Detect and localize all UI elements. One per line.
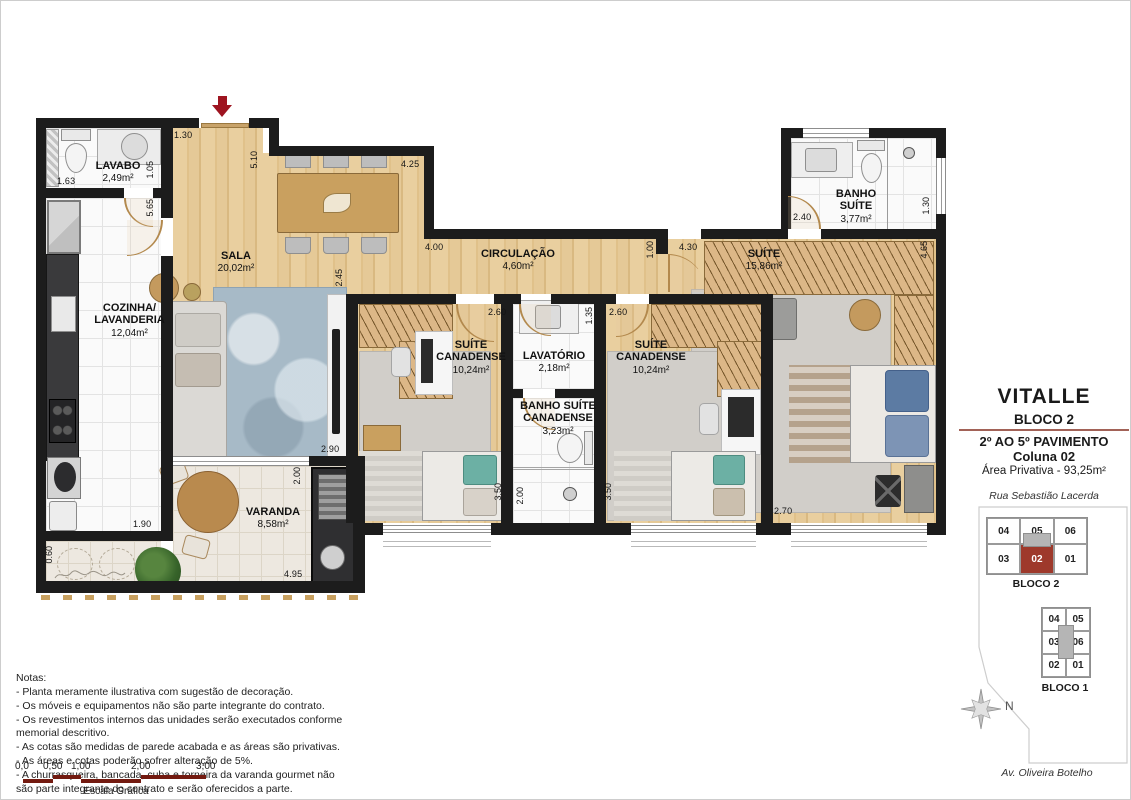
keyplan-unit-01[interactable]: 01 — [1054, 544, 1087, 574]
wall — [161, 256, 173, 461]
dining-chair — [361, 237, 387, 254]
dimension: 3.50 — [493, 483, 503, 501]
dimension: 4.30 — [679, 242, 697, 252]
pillow-neutral-2 — [713, 488, 745, 516]
decor-bowl — [183, 283, 201, 301]
dimension: 2.60 — [609, 307, 627, 317]
scale-tick-label: 3,00 — [196, 761, 215, 772]
wall — [513, 294, 521, 304]
wall — [269, 146, 434, 156]
wall — [756, 523, 791, 535]
pillow-teal-2 — [713, 455, 745, 485]
compass-rose-icon — [959, 687, 1003, 731]
keyplan-b1-core — [1058, 625, 1074, 659]
divider-line — [959, 429, 1129, 431]
wall — [153, 188, 173, 198]
lavabo-toilet-tank — [61, 129, 91, 141]
room-label-banho-canadense: BANHO SUÍTE CANADENSE3,23m² — [506, 400, 610, 437]
keyplan-unit-03[interactable]: 03 — [987, 544, 1020, 574]
keyplan-unit-04[interactable]: 04 — [987, 518, 1020, 544]
room-label-cozinha: COZINHA/ LAVANDERIA12,04m² — [77, 302, 182, 339]
nightstand — [363, 425, 401, 451]
keyplan-unit-06[interactable]: 06 — [1054, 518, 1087, 544]
wall — [513, 389, 523, 398]
wall — [761, 294, 773, 523]
wall — [36, 581, 365, 593]
scale-tick-label: 0,0 — [15, 761, 29, 772]
note-line: memorial descritivo. — [16, 727, 356, 741]
room-label-banho-suite: BANHO SUÍTE3,77m² — [811, 188, 901, 225]
kitchen-sink — [51, 296, 76, 332]
dining-table-centerpiece — [323, 193, 351, 213]
cooktop — [49, 399, 76, 443]
keyplan-bloco-1-label: BLOCO 1 — [1017, 682, 1113, 694]
wall — [781, 128, 803, 138]
bed-pillow-blue — [885, 370, 929, 412]
scale-bar-segment — [53, 775, 81, 779]
pillow-teal — [463, 455, 497, 485]
compass-north-label: N — [1005, 699, 1014, 713]
wall — [36, 531, 173, 541]
dimension: 4.95 — [284, 569, 302, 579]
sliding-door-varanda — [173, 456, 309, 466]
wall — [36, 188, 124, 198]
block-title: BLOCO 2 — [959, 412, 1129, 427]
dimension: 2.60 — [488, 307, 506, 317]
window — [803, 128, 869, 138]
wall — [821, 229, 946, 239]
wall — [927, 523, 946, 535]
single-bed-2-blanket — [614, 451, 672, 521]
room-label-suite-canadense-2: SUÍTE CANADENSE10,24m² — [596, 339, 706, 376]
banho-suite-toilet-tank — [857, 140, 885, 151]
window-sill — [383, 541, 491, 547]
round-side-table — [849, 299, 881, 331]
room-label-sala: SALA20,02m² — [191, 250, 281, 275]
fridge — [47, 200, 81, 254]
window — [791, 525, 927, 533]
washing-machine-drum — [54, 462, 76, 492]
desk-2-computer — [728, 397, 754, 437]
x-chair — [875, 475, 901, 507]
wall — [353, 523, 383, 535]
wall — [656, 229, 668, 254]
scale-tick-label: 2,00 — [131, 761, 150, 772]
dimension: 3.50 — [603, 483, 613, 501]
street-name-bottom: Av. Oliveira Botelho — [967, 767, 1127, 779]
keyplan-unit-02-highlighted[interactable]: 02 — [1020, 544, 1053, 574]
dining-chair — [285, 237, 311, 254]
keyplan-bloco-2-label: BLOCO 2 — [986, 578, 1086, 590]
wall — [701, 229, 788, 239]
sofa-cushion — [175, 353, 221, 387]
dimension: 4.25 — [401, 159, 419, 169]
scale-tick-label: 0,50 — [43, 761, 62, 772]
note-line: - Os revestimentos internos das unidades… — [16, 714, 356, 728]
dimension: 5.10 — [249, 151, 259, 169]
dimension: 5.65 — [145, 199, 155, 217]
shower-partition-line — [513, 467, 594, 470]
wall — [424, 146, 434, 239]
wall — [869, 128, 946, 138]
dimension: 4.00 — [425, 242, 443, 252]
window-sill — [631, 541, 756, 547]
dimension: 1.35 — [584, 307, 594, 325]
scale-bar-segment — [23, 779, 53, 783]
dimension: 1.05 — [145, 161, 155, 179]
dimension: 0.60 — [44, 546, 54, 564]
bed-pillow-blue — [885, 415, 929, 457]
note-line: - Planta meramente ilustrativa com suges… — [16, 686, 356, 700]
wall — [491, 523, 631, 535]
wall — [649, 294, 771, 304]
column-label: Coluna 02 — [959, 449, 1129, 464]
banho-suite-basin — [805, 148, 837, 172]
wall — [424, 229, 656, 239]
window — [936, 158, 946, 214]
dimension: 1.90 — [133, 519, 151, 529]
room-label-suite: SUÍTE15,86m² — [714, 248, 814, 273]
dimension: 2.90 — [321, 444, 339, 454]
single-bed-blanket — [359, 451, 423, 521]
dimension: 1.30 — [921, 197, 931, 215]
dimension: 2.00 — [515, 487, 525, 505]
window — [383, 525, 491, 533]
scale-tick-label: 1,00 — [71, 761, 90, 772]
window — [631, 525, 756, 533]
shower-head-2 — [563, 487, 577, 501]
wall — [936, 128, 946, 158]
wall — [36, 118, 199, 128]
keyplan-core — [1023, 533, 1051, 547]
dimension: 4.65 — [919, 241, 929, 259]
entry-door-leaf — [201, 123, 249, 128]
gourmet-sink — [320, 545, 345, 570]
room-label-lavatorio: LAVATÓRIO2,18m² — [510, 350, 598, 375]
dimension: 2.70 — [774, 506, 792, 516]
tv-screen — [332, 329, 340, 434]
floorplan-sheet: LAVABO2,49m² SALA20,02m² COZINHA/ LAVAND… — [0, 0, 1131, 800]
dimension: 2.00 — [292, 467, 302, 485]
dining-chair — [323, 237, 349, 254]
scale-bar-segment — [81, 779, 141, 783]
wall — [161, 198, 173, 218]
window-sill — [791, 541, 927, 547]
scale-caption: Escala Gráfica — [61, 786, 171, 797]
dimension: 2.40 — [793, 212, 811, 222]
shower-head — [903, 147, 915, 159]
wardrobe-suite-right — [894, 295, 934, 375]
note-line: - As áreas e cotas poderão sofrer altera… — [16, 755, 356, 769]
wall — [936, 214, 946, 535]
wall — [346, 304, 358, 523]
dimension: 2.45 — [334, 269, 344, 287]
dimension: 1.63 — [57, 176, 75, 186]
wall — [606, 294, 616, 304]
private-area-label: Área Privativa - 93,25m² — [959, 465, 1129, 477]
dimension: 1.00 — [645, 241, 655, 259]
pillow-neutral — [463, 488, 497, 516]
wall — [161, 461, 173, 541]
room-label-varanda: VARANDA8,58m² — [223, 506, 323, 531]
dimension: 1.30 — [174, 130, 192, 140]
wall — [346, 294, 456, 304]
room-label-circulacao: CIRCULAÇÃO4,60m² — [453, 248, 583, 273]
desk-2-chair — [699, 403, 719, 435]
entry-arrow-icon — [212, 105, 232, 117]
tv-cabinet-suite — [904, 465, 934, 513]
varanda-edge-dashes — [41, 595, 361, 600]
laundry-tank — [49, 501, 77, 531]
lavabo-basin — [121, 133, 148, 160]
desk-chair — [391, 347, 411, 377]
wall — [555, 389, 596, 398]
floors-label: 2º AO 5º PAVIMENTO — [959, 434, 1129, 449]
notes-title: Notas: — [16, 672, 356, 686]
note-line: - Os móveis e equipamentos não são parte… — [16, 700, 356, 714]
project-title: VITALLE — [959, 385, 1129, 409]
wall — [161, 118, 173, 198]
note-line: - As cotas são medidas de parede acabada… — [16, 741, 356, 755]
scale-bar-segment — [141, 775, 206, 779]
bed-runner — [789, 365, 851, 463]
